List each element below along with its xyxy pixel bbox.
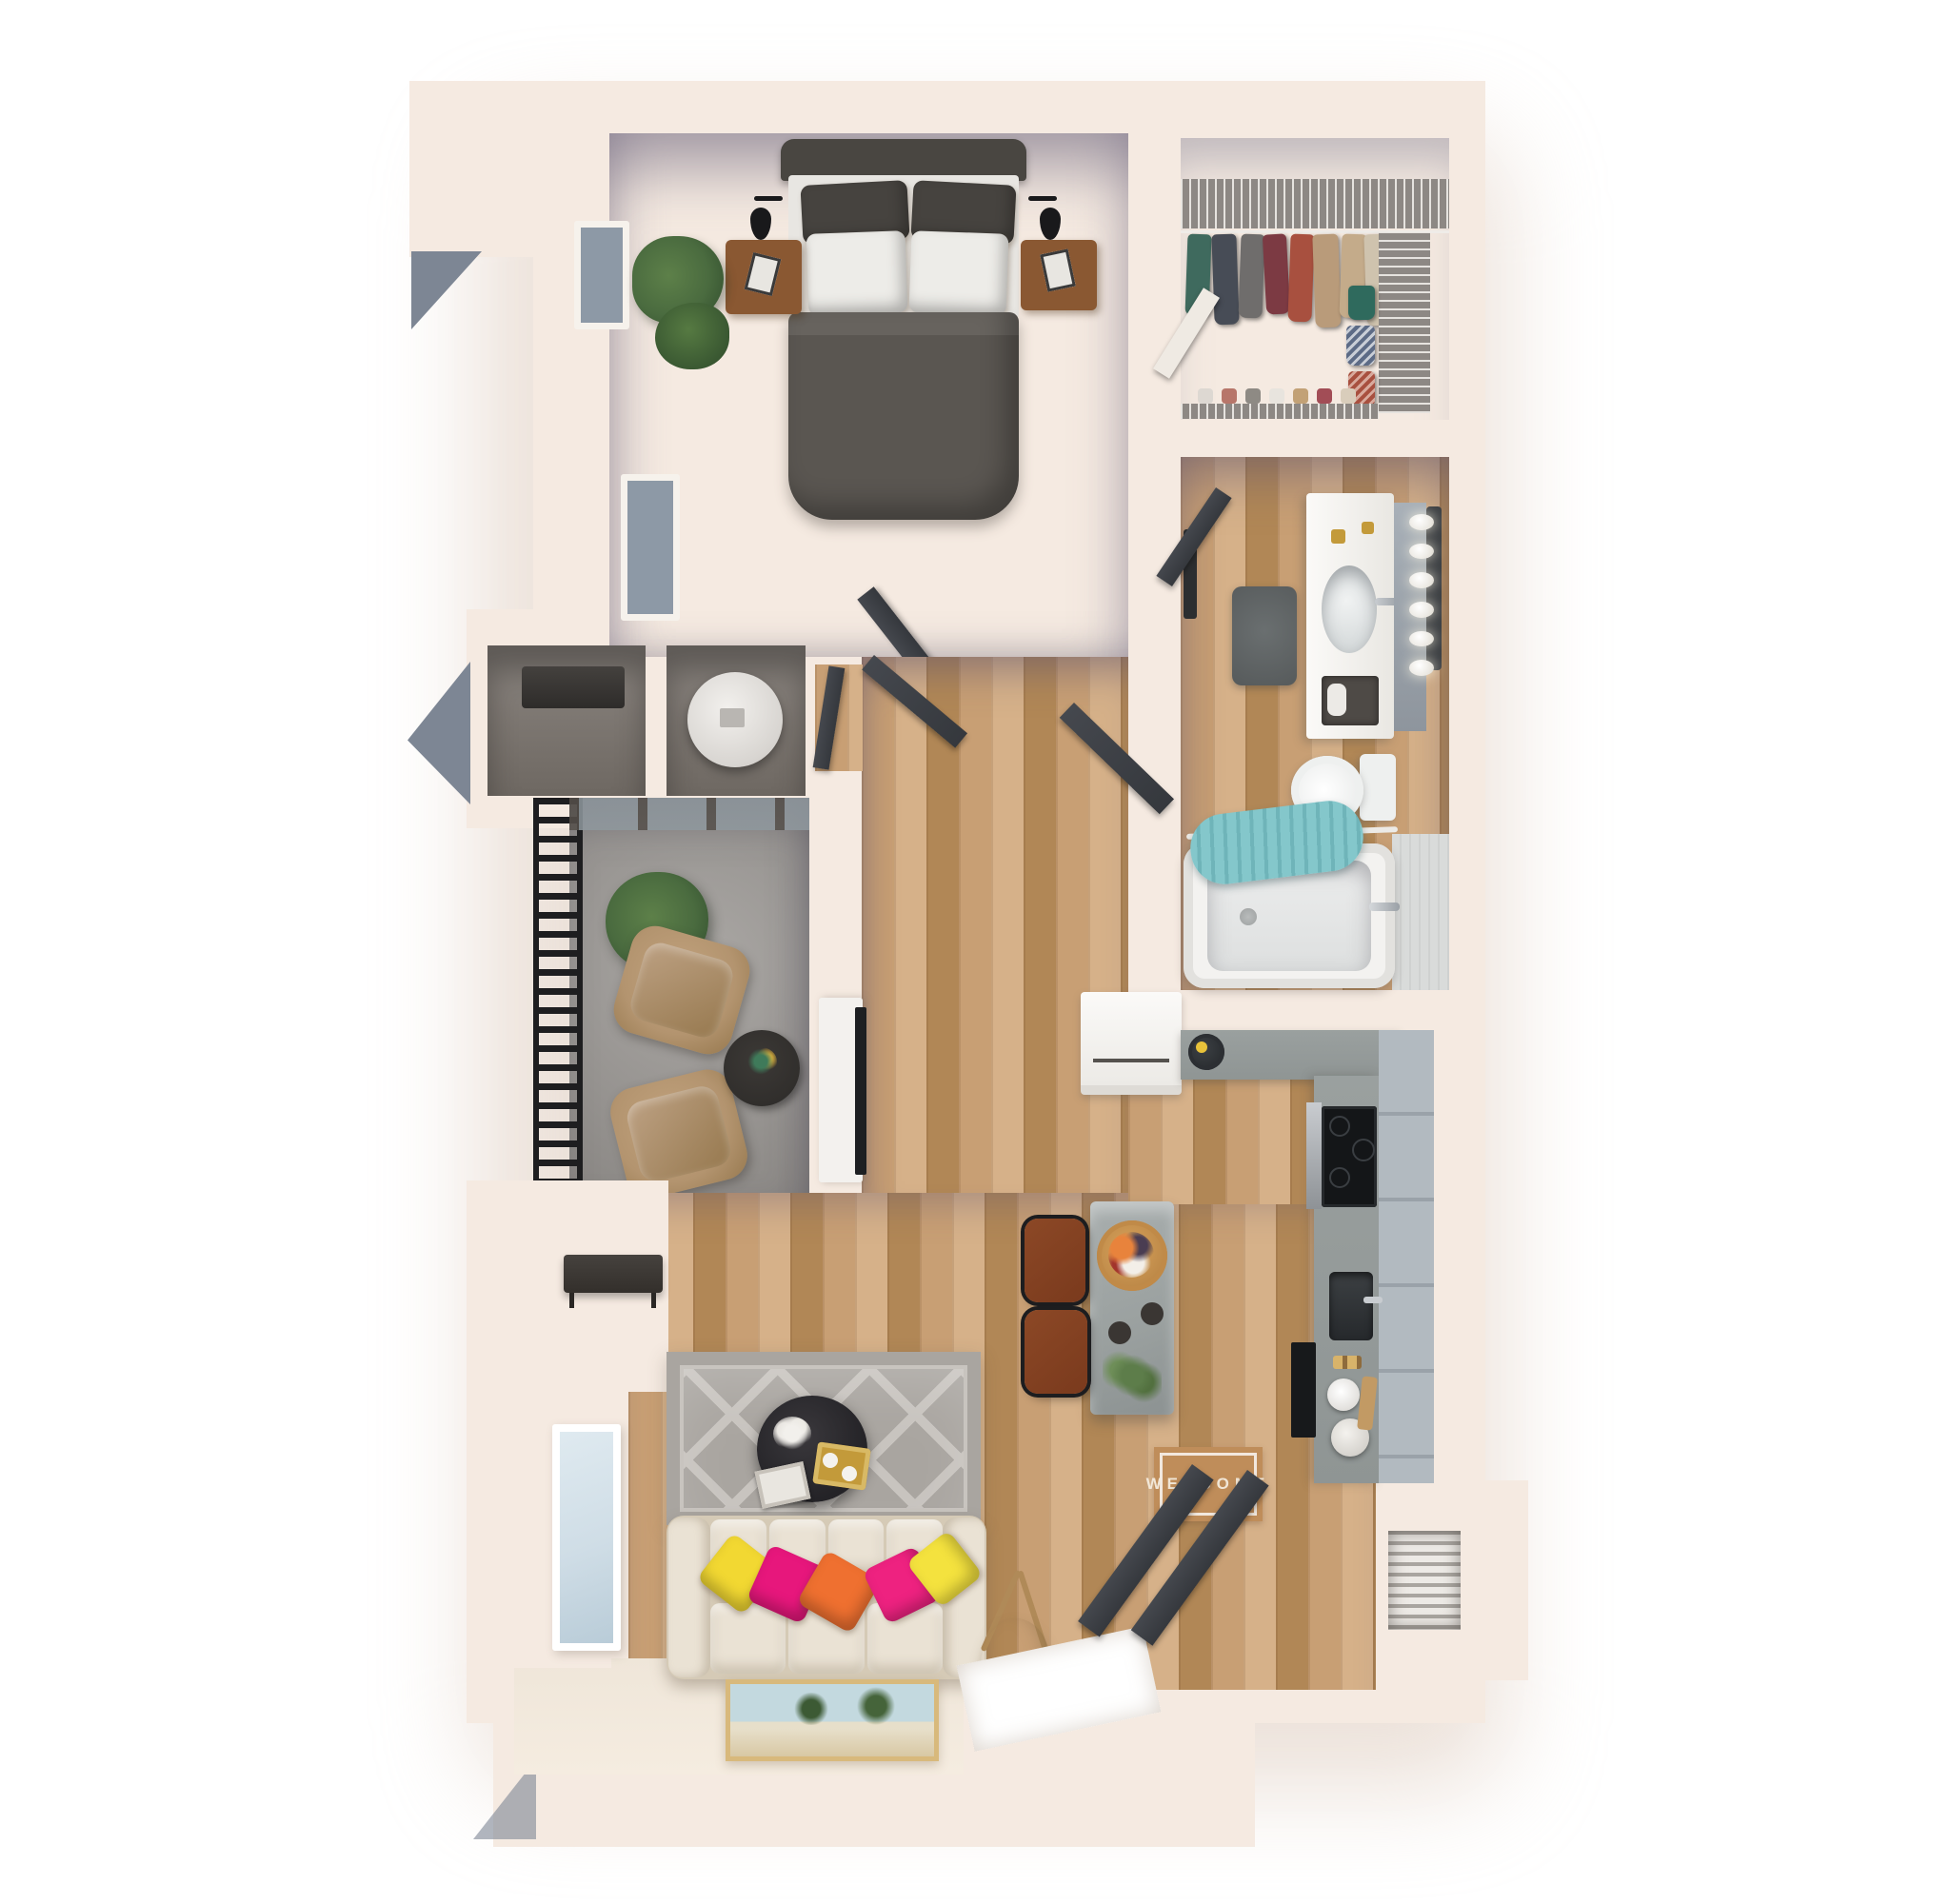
exterior-shadow-wedge-top	[411, 251, 482, 329]
island-flowers	[1103, 1348, 1162, 1403]
closet-wire-shoe-rack	[1181, 404, 1379, 419]
bedroom-window-2	[621, 474, 680, 621]
bed-duvet	[788, 312, 1019, 520]
closet-wire-shelf-right	[1379, 232, 1430, 413]
kitchen-sink	[1329, 1272, 1373, 1340]
cooktop-burner	[1352, 1139, 1375, 1161]
coffee-maker	[1327, 1378, 1360, 1411]
spice-jars	[1333, 1356, 1362, 1369]
sofa-arm-left	[668, 1517, 710, 1677]
closet-garment-maroon	[1263, 233, 1290, 314]
closet-wire-shelf-top	[1181, 179, 1449, 228]
sink-faucet-icon	[1363, 1297, 1383, 1303]
vanity-bulb-icon	[1409, 514, 1434, 530]
shoe	[1269, 388, 1284, 404]
fridge-handle-line	[1093, 1059, 1169, 1062]
coffee-table-tray	[812, 1441, 871, 1490]
console-leg	[651, 1293, 656, 1308]
closet-garment-tan	[1312, 234, 1341, 328]
floor-plan-render: WELCOME	[0, 0, 1950, 1904]
wall-lamp-right-arm	[1028, 196, 1057, 201]
bedroom-plant-lower	[655, 303, 729, 369]
console-leg	[569, 1293, 574, 1308]
bar-stool-2	[1025, 1310, 1087, 1394]
hvac-unit	[522, 666, 625, 708]
bath-mat	[1232, 586, 1297, 685]
tray-cup	[842, 1466, 857, 1481]
fridge	[1081, 992, 1182, 1095]
shoe	[1198, 388, 1213, 404]
art-palm-icon	[853, 1687, 899, 1725]
bed-pillow-white-right	[909, 230, 1009, 316]
water-heater-label	[720, 708, 745, 727]
bed-pillow-white-left	[806, 230, 908, 316]
robot-vacuum-accent	[1196, 1041, 1207, 1053]
balcony-glazing	[569, 798, 809, 830]
vanity-soap-gold	[1331, 529, 1345, 544]
exterior-shadow-wedge-mid	[408, 662, 470, 804]
island-plate	[1108, 1321, 1131, 1344]
louver-vent-closet	[1388, 1531, 1461, 1630]
art-palm-icon	[790, 1693, 832, 1725]
tv-panel	[855, 1007, 866, 1175]
charcuterie-food	[1108, 1232, 1154, 1278]
closet-shoes-row	[1198, 388, 1379, 404]
framed-beach-art	[726, 1679, 939, 1761]
cooktop-burner	[1329, 1116, 1350, 1137]
shoe	[1317, 388, 1332, 404]
toilet-tank	[1360, 754, 1396, 821]
bar-stool-1	[1025, 1219, 1085, 1302]
vanity-bulb-icon	[1409, 572, 1434, 588]
bathtub-faucet-icon	[1369, 902, 1400, 911]
kitchen-cabinets	[1379, 1030, 1434, 1483]
shoe	[1245, 388, 1261, 404]
closet-garment-red	[1287, 234, 1314, 323]
robot-vacuum-icon	[1188, 1034, 1224, 1070]
chair-cushion	[627, 939, 736, 1041]
sofa-seat-cushion	[710, 1603, 786, 1674]
coffee-table-flowers	[773, 1417, 811, 1451]
wall-lamp-left-arm	[754, 196, 783, 201]
vanity-towel-roll	[1327, 684, 1346, 716]
dishwasher-front	[1291, 1342, 1316, 1438]
shoe	[1293, 388, 1308, 404]
chair-cushion	[624, 1082, 734, 1184]
vanity-bulb-icon	[1409, 602, 1434, 618]
wall-top-left-protrusion	[409, 81, 552, 257]
closet-folded-stripe	[1346, 326, 1375, 366]
bathtub-drain-icon	[1240, 908, 1257, 925]
vanity-bulb-icon	[1409, 660, 1434, 676]
tub-surround	[1392, 834, 1449, 990]
vanity-bulb-icon	[1409, 631, 1434, 647]
tray-cup	[823, 1453, 838, 1468]
vanity-sink	[1322, 565, 1377, 653]
oven-front	[1306, 1102, 1322, 1209]
bedroom-window-1	[574, 221, 629, 329]
shoe	[1222, 388, 1237, 404]
vanity-soap-gold-2	[1362, 522, 1374, 534]
wall-entry-bump	[1466, 1480, 1528, 1680]
vanity-bulb-icon	[1409, 544, 1434, 560]
closet-garment-navy	[1211, 234, 1239, 326]
closet-folded-teal	[1348, 286, 1375, 320]
cooktop-burner	[1329, 1167, 1350, 1188]
closet-garment-gray	[1238, 234, 1264, 319]
living-console-table	[564, 1255, 663, 1293]
balcony-railing	[533, 798, 583, 1193]
island-plate	[1141, 1302, 1164, 1325]
vanity-lights	[1409, 514, 1434, 676]
living-window	[552, 1424, 621, 1651]
side-table-plant-icon	[745, 1047, 777, 1076]
shoe	[1341, 388, 1356, 404]
